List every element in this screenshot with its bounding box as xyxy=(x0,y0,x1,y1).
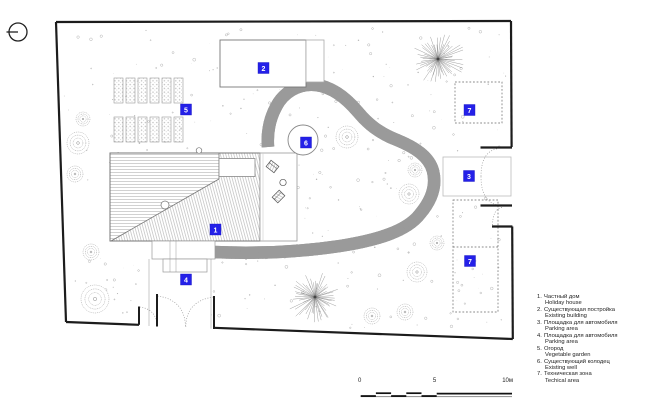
plan-label-1: 1 xyxy=(210,224,221,235)
legend-item-6: 6.Существующий колодец Existing well xyxy=(537,359,649,372)
garden-bed xyxy=(126,117,135,142)
svg-text:1: 1 xyxy=(214,228,218,235)
parking-area-3 xyxy=(443,157,511,196)
plan-label-4: 4 xyxy=(181,274,192,285)
legend-item-1: 1.Частный дом Holiday house xyxy=(537,294,649,307)
tech-areas-7 xyxy=(453,82,502,312)
table-icon xyxy=(280,179,286,185)
legend-item-4: 4.Площадка для автомобиля Parking area xyxy=(537,333,649,346)
north-arrow-icon xyxy=(7,23,28,41)
scale-tick-0: 0 xyxy=(358,378,362,384)
scale-bar: 0 5 10м xyxy=(358,378,513,397)
garden-bed xyxy=(138,117,147,142)
legend-item-2: 2.Существующая постройка Existing buildi… xyxy=(537,307,649,320)
garden-bed xyxy=(138,78,147,103)
svg-text:7: 7 xyxy=(468,259,472,266)
garden-bed xyxy=(174,78,183,103)
legend-item-3: 3.Площадка для автомобиля Parking area xyxy=(537,320,649,333)
svg-text:6: 6 xyxy=(304,141,308,148)
garden-bed xyxy=(162,78,171,103)
garden-bed xyxy=(150,117,159,142)
svg-text:3: 3 xyxy=(467,174,471,181)
garden-bed xyxy=(150,78,159,103)
garden-beds xyxy=(114,78,183,142)
svg-text:5: 5 xyxy=(184,108,188,115)
plan-label-3: 3 xyxy=(464,171,475,182)
legend-item-5: 5.Огород Vegetable garden xyxy=(537,346,649,359)
svg-text:7: 7 xyxy=(468,108,472,115)
svg-text:4: 4 xyxy=(184,278,188,285)
plan-label-2: 2 xyxy=(258,63,269,74)
garden-bed xyxy=(162,117,171,142)
site-plan-page: 1 2 3 4 5 6 7 7 xyxy=(0,0,650,417)
roof-circle-icon xyxy=(161,201,169,209)
terrace xyxy=(260,153,297,241)
plan-label-7-bottom: 7 xyxy=(465,256,476,267)
legend: 1.Частный дом Holiday house 2.Существующ… xyxy=(537,294,649,384)
plan-label-6: 6 xyxy=(301,137,312,148)
tech-area-7-top xyxy=(455,82,502,123)
legend-item-7: 7.Техническая зона Techical area xyxy=(537,371,649,384)
skylight xyxy=(219,159,255,177)
plan-label-7-top: 7 xyxy=(464,105,475,116)
garden-bed xyxy=(126,78,135,103)
garden-bed xyxy=(114,78,123,103)
plan-label-5: 5 xyxy=(181,104,192,115)
svg-text:2: 2 xyxy=(262,66,266,73)
roof-vent-icon xyxy=(196,148,202,154)
garden-bed xyxy=(114,117,123,142)
building-2 xyxy=(220,40,324,87)
scale-tick-10m: 10м xyxy=(502,378,513,384)
garden-bed xyxy=(174,117,183,142)
scale-tick-5: 5 xyxy=(433,378,437,384)
